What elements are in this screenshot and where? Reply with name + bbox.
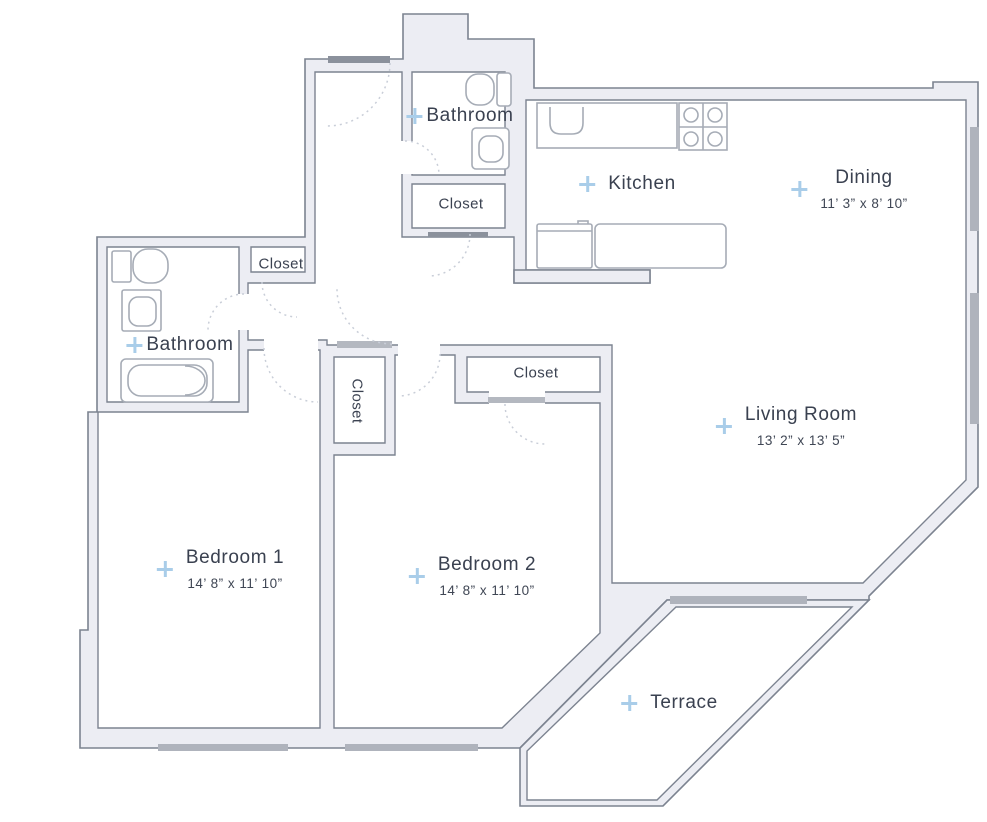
room-label-bedroom-1: Bedroom 1 14’ 8” x 11’ 10” bbox=[186, 547, 284, 593]
plus-icon bbox=[157, 561, 173, 577]
room-name: Bathroom bbox=[426, 105, 513, 127]
closet-label-bedroom-2: Closet bbox=[514, 365, 559, 382]
plus-icon bbox=[126, 337, 142, 353]
toilet-symbol bbox=[112, 249, 168, 283]
window-bedroom-1 bbox=[158, 744, 288, 751]
counter-symbol bbox=[595, 224, 726, 268]
room-label-bedroom-2: Bedroom 2 14’ 8” x 11’ 10” bbox=[438, 554, 536, 600]
kitchen-peninsula-wall bbox=[514, 270, 650, 283]
plus-icon bbox=[579, 176, 595, 192]
room-name: Kitchen bbox=[608, 173, 676, 195]
kitchen-counter-symbol bbox=[537, 103, 677, 148]
room-name: Bathroom bbox=[146, 334, 233, 356]
sink-symbol bbox=[122, 290, 161, 331]
room-dimensions: 14’ 8” x 11’ 10” bbox=[186, 576, 284, 591]
room-label-terrace: Terrace bbox=[650, 692, 718, 714]
closet-label-hall-left: Closet bbox=[259, 256, 304, 273]
toilet-symbol bbox=[472, 128, 509, 169]
room-name: Bedroom 1 bbox=[186, 547, 284, 569]
closet-hall-top-door bbox=[428, 232, 488, 237]
plus-icon bbox=[791, 181, 807, 197]
entry-door bbox=[328, 56, 390, 63]
room-label-bathroom-top: Bathroom bbox=[426, 105, 513, 127]
room-label-dining: Dining 11’ 3” x 8’ 10” bbox=[820, 167, 907, 213]
closet-label-hall-top: Closet bbox=[439, 196, 484, 213]
bathtub-symbol bbox=[121, 359, 213, 402]
room-name: Living Room bbox=[745, 404, 857, 426]
room-label-kitchen: Kitchen bbox=[608, 173, 676, 195]
plus-icon bbox=[409, 568, 425, 584]
room-name: Terrace bbox=[650, 692, 718, 714]
window-dining bbox=[970, 127, 979, 231]
window-living-room bbox=[970, 293, 979, 424]
plus-icon bbox=[621, 695, 637, 711]
plus-icon bbox=[716, 418, 732, 434]
closet-label-bedrooms: Closet bbox=[349, 379, 366, 424]
room-name: Dining bbox=[820, 167, 907, 189]
closet-bedroom-2-door bbox=[488, 397, 545, 403]
room-dimensions: 13’ 2” x 13’ 5” bbox=[745, 433, 857, 448]
sink-symbol bbox=[466, 73, 511, 106]
fridge-symbol bbox=[537, 221, 592, 268]
window-bedroom-2 bbox=[345, 744, 478, 751]
plus-icon bbox=[406, 108, 422, 124]
floor-plan: Kitchen Dining 11’ 3” x 8’ 10” Living Ro… bbox=[0, 0, 987, 822]
room-dimensions: 11’ 3” x 8’ 10” bbox=[820, 196, 907, 211]
closet-bedrooms-door bbox=[337, 341, 392, 348]
room-name: Bedroom 2 bbox=[438, 554, 536, 576]
stove-symbol bbox=[679, 103, 727, 150]
room-label-living-room: Living Room 13’ 2” x 13’ 5” bbox=[745, 404, 857, 450]
terrace-door bbox=[670, 596, 807, 604]
room-label-bathroom-left: Bathroom bbox=[146, 334, 233, 356]
room-dimensions: 14’ 8” x 11’ 10” bbox=[438, 583, 536, 598]
